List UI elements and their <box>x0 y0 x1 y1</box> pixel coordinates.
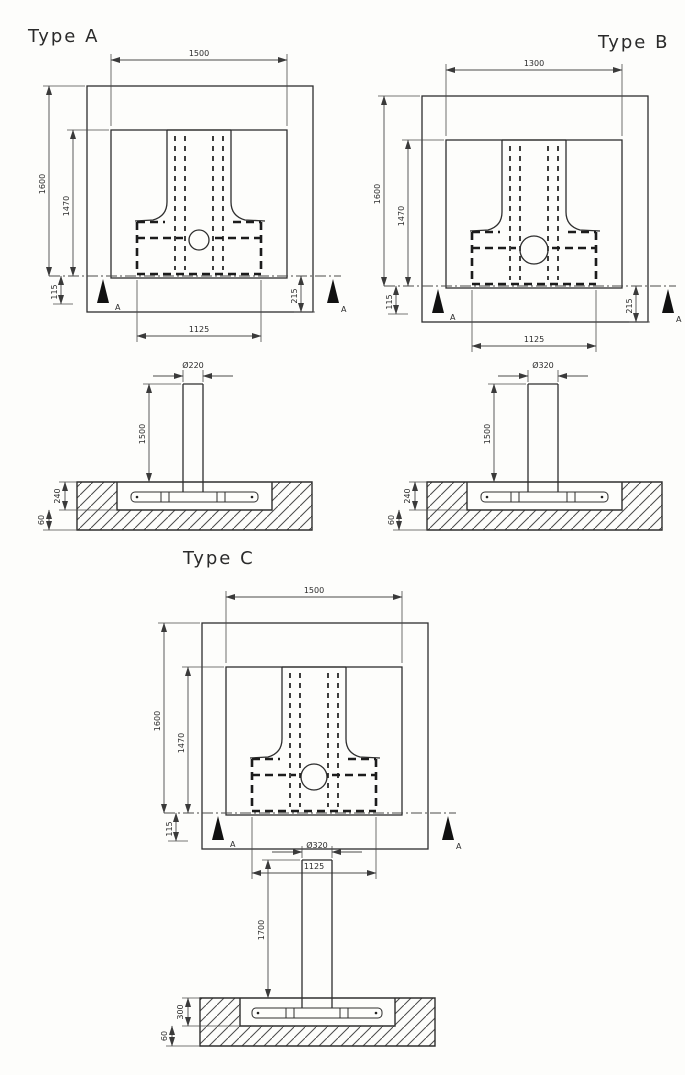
anchor-hole <box>301 764 327 790</box>
pole <box>183 384 203 492</box>
anchor-hole <box>189 230 209 250</box>
section-arrow-left <box>97 279 109 303</box>
dim-embed-depth: 240 <box>403 488 412 503</box>
dimensions: 1300 1600 1470 1125 115 215 <box>373 59 650 352</box>
dim-bottom-width: 1125 <box>524 335 544 344</box>
pedestal-hidden-outline <box>470 140 600 284</box>
anchor-plate <box>252 1008 382 1018</box>
pole <box>302 860 332 1008</box>
foundation-outline <box>87 86 313 312</box>
section-arrow-right <box>662 289 674 313</box>
section-arrow-right <box>327 279 339 303</box>
dim-top-width: 1500 <box>189 49 209 58</box>
dim-toe-depth: 60 <box>37 515 46 525</box>
foundation-block <box>77 482 312 530</box>
dim-right-offset: 215 <box>625 298 634 313</box>
dim-inner-height: 1470 <box>397 206 406 226</box>
dimensions: 1500 1600 1470 1125 115 215 <box>38 49 315 342</box>
anchor-hole <box>520 236 548 264</box>
section-arrow-right <box>442 816 454 840</box>
section-arrow-left <box>212 816 224 840</box>
dimensions: 1500 1600 1470 1125 115 <box>153 586 402 879</box>
dim-left-offset: 115 <box>50 284 59 299</box>
section-label-right: A <box>676 315 682 324</box>
foundation-block <box>427 482 662 530</box>
section-markers: A A <box>432 289 682 324</box>
dim-pole-height: 1500 <box>138 424 147 444</box>
section-label-left: A <box>450 313 456 322</box>
pole <box>528 384 558 492</box>
dim-pole-height: 1700 <box>257 920 266 940</box>
foundation-outline <box>422 96 648 322</box>
pedestal-hidden-outline <box>135 130 265 274</box>
type-b-plan-view: 1300 1600 1470 1125 115 215 A A <box>350 18 685 363</box>
dim-left-offset: 115 <box>165 821 174 836</box>
dim-embed-depth: 300 <box>176 1004 185 1019</box>
dim-outer-height: 1600 <box>373 184 382 204</box>
section-arrow-left <box>432 289 444 313</box>
dim-left-offset: 115 <box>385 294 394 309</box>
dim-bottom-width: 1125 <box>189 325 209 334</box>
type-a-plan-view: 1500 1600 1470 1125 115 215 A A <box>15 8 350 353</box>
anchor-plate <box>481 492 608 502</box>
dim-inner-height: 1470 <box>177 733 186 753</box>
pedestal-hidden-outline <box>250 667 380 811</box>
section-markers: A A <box>97 279 347 314</box>
dim-embed-depth: 240 <box>53 488 62 503</box>
dim-outer-height: 1600 <box>38 174 47 194</box>
type-c-section-view: Ø320 1700 300 60 <box>140 840 460 1060</box>
type-c-plan-view: 1500 1600 1470 1125 115 A A <box>130 545 465 890</box>
dim-top-width: 1500 <box>304 586 324 595</box>
type-b-section-view: Ø320 1500 240 60 <box>375 352 680 547</box>
dim-toe-depth: 60 <box>160 1031 169 1041</box>
dim-pole-diameter: Ø320 <box>306 840 328 850</box>
dim-pole-height: 1500 <box>483 424 492 444</box>
foundation-outline <box>202 623 428 849</box>
type-a-section-view: Ø220 1500 240 60 <box>25 352 330 547</box>
dim-right-offset: 215 <box>290 288 299 303</box>
dim-top-width: 1300 <box>524 59 544 68</box>
anchor-plate <box>131 492 258 502</box>
dim-pole-diameter: Ø320 <box>532 360 554 370</box>
dim-toe-depth: 60 <box>387 515 396 525</box>
foundation-block <box>200 998 435 1046</box>
section-label-right: A <box>341 305 347 314</box>
dim-pole-diameter: Ø220 <box>182 360 204 370</box>
section-label-left: A <box>115 303 121 312</box>
dim-outer-height: 1600 <box>153 711 162 731</box>
dim-inner-height: 1470 <box>62 196 71 216</box>
